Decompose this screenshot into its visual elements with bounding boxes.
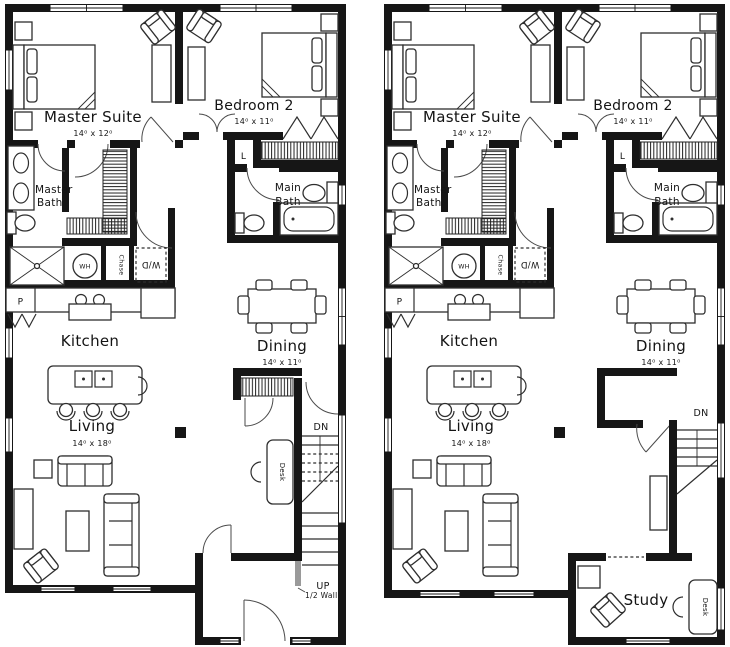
unit-right <box>384 4 725 645</box>
floor-plan-canvas: Master Suite 14⁰ x 12⁰ Bedroom 2 14⁰ x 1… <box>0 0 730 647</box>
floor-plan: Master Suite 14⁰ x 12⁰ Bedroom 2 14⁰ x 1… <box>0 0 730 647</box>
unit-left <box>5 4 346 645</box>
